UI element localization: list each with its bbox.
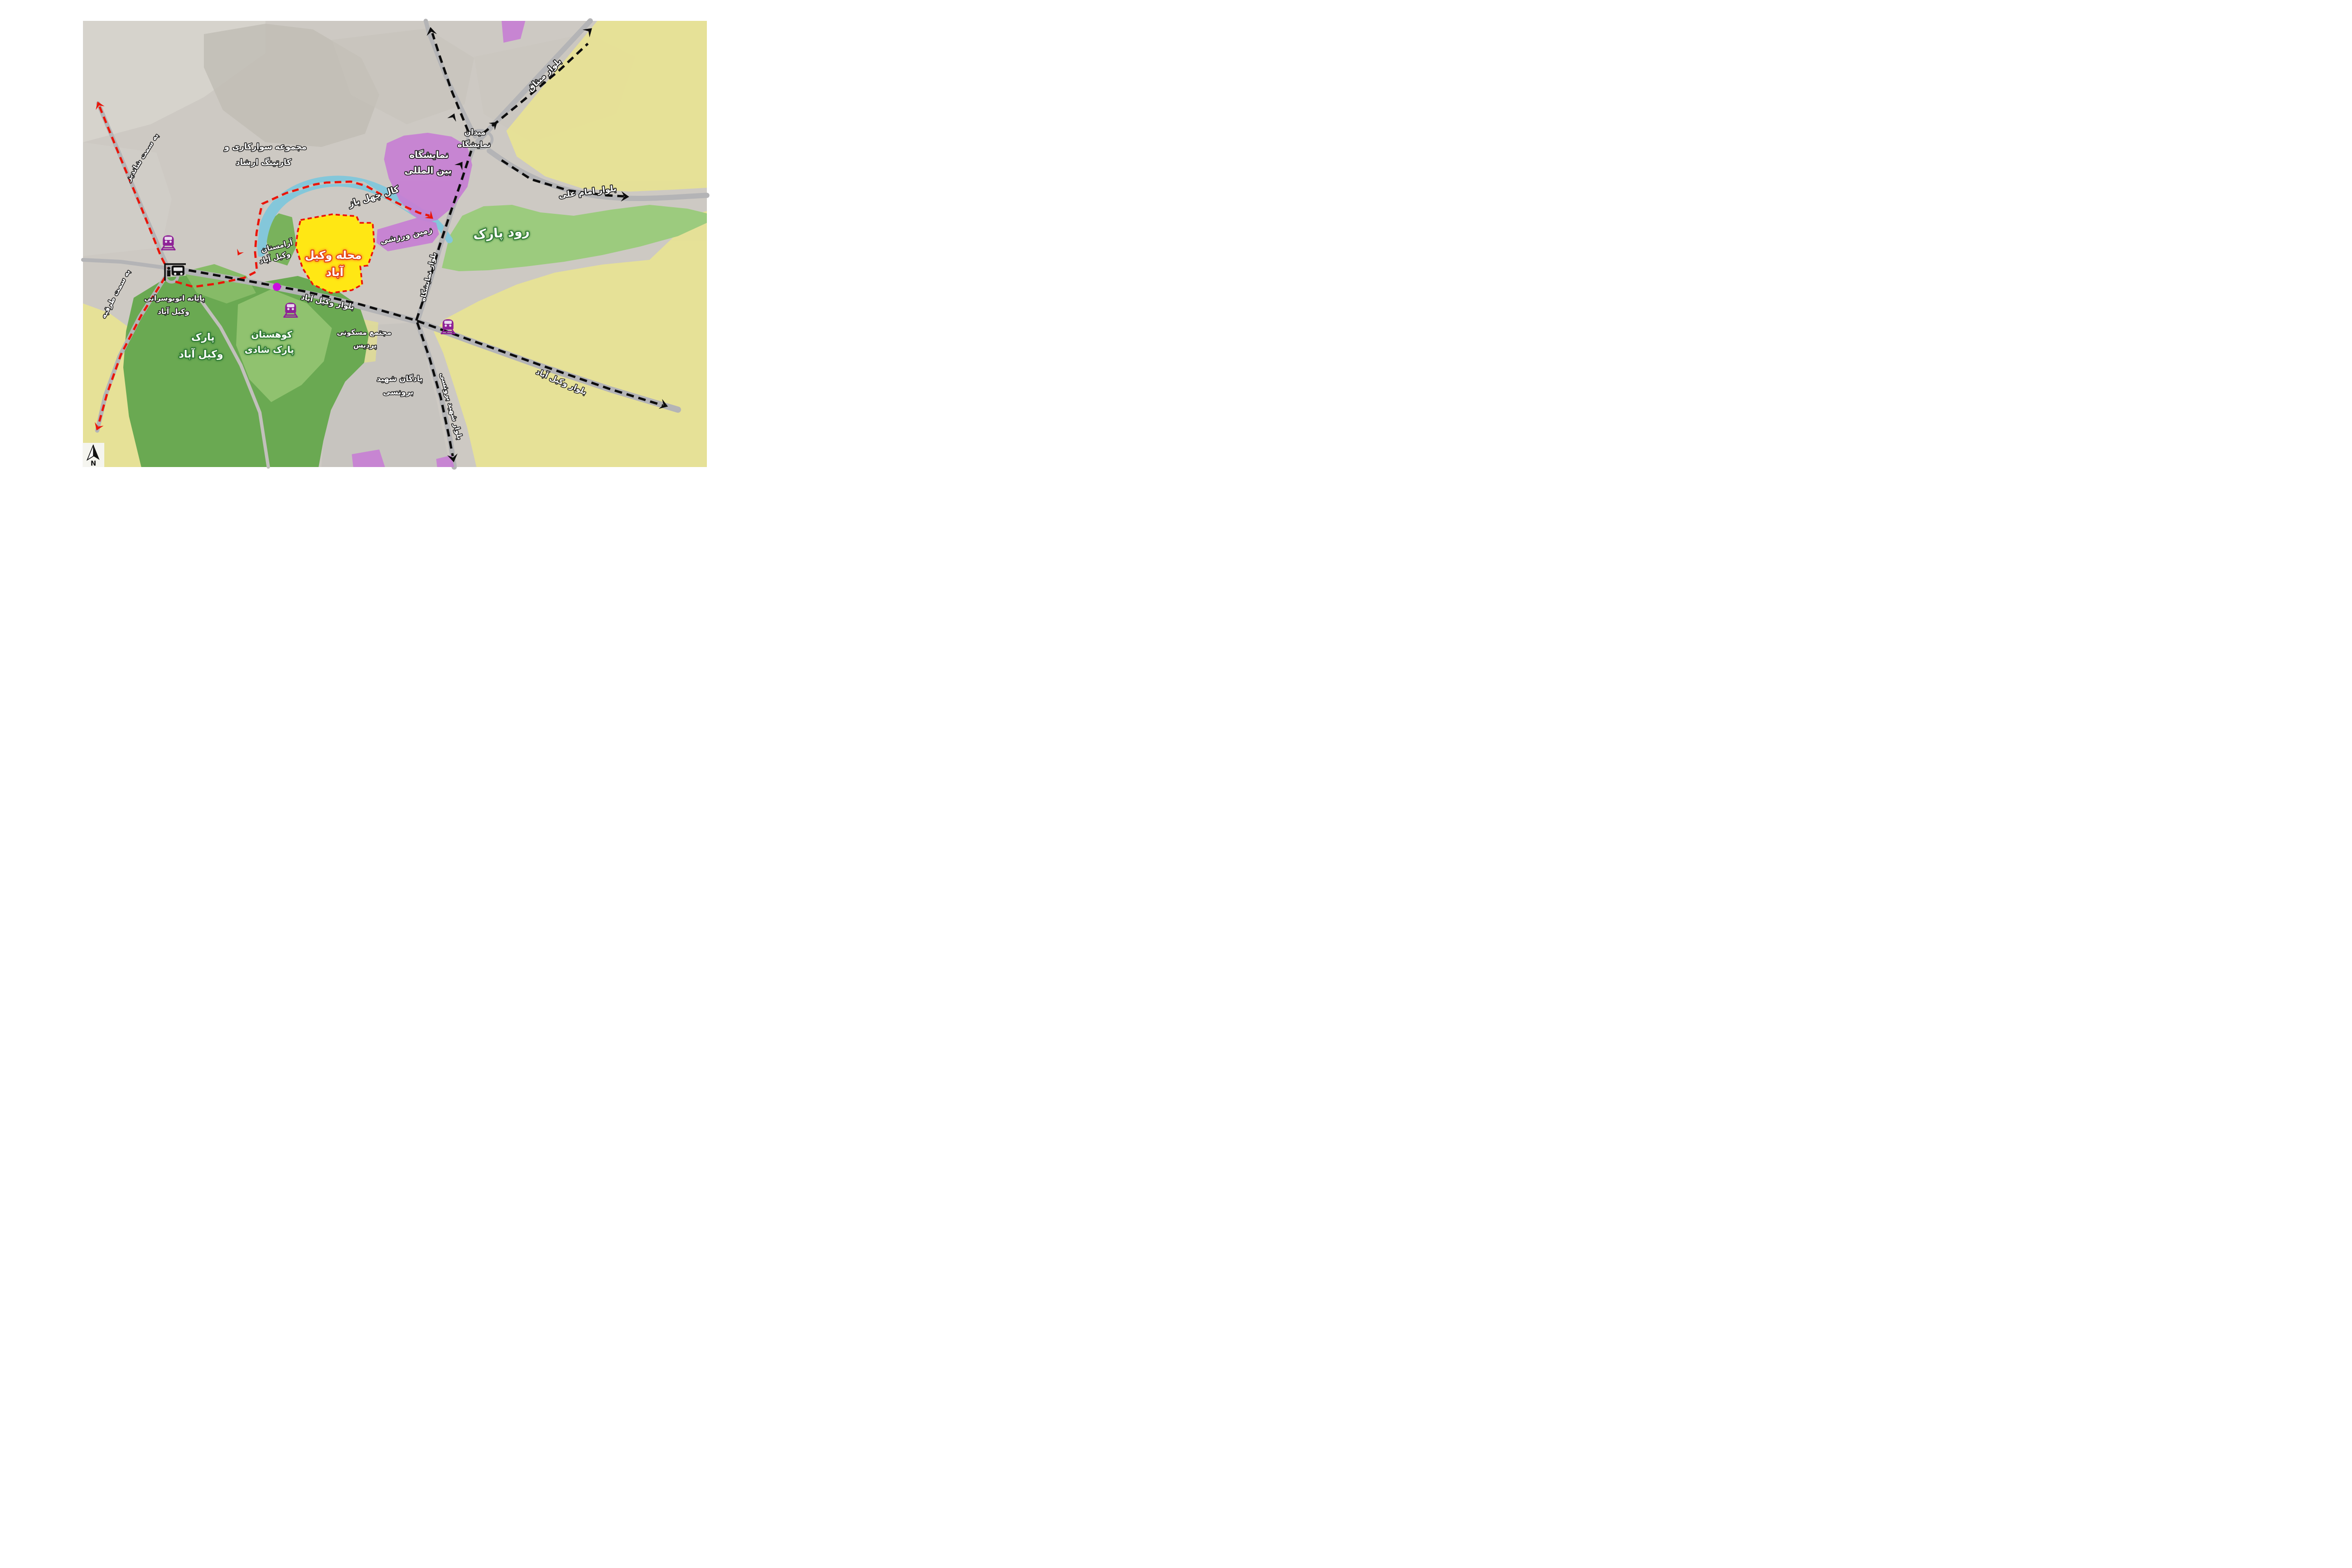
label-exhibition-square-line1: میدان — [465, 128, 486, 137]
label-exhibition-square-line2: نمایشگاه — [458, 140, 491, 149]
label-neighborhood-line2: آباد — [326, 265, 344, 279]
map-page: مجموعه سوارکاری و کارتینگ ارشاد کال چهل … — [0, 0, 732, 486]
north-letter: N — [91, 460, 96, 468]
map-canvas: مجموعه سوارکاری و کارتینگ ارشاد کال چهل … — [0, 0, 732, 486]
metro-train-icon — [161, 235, 175, 250]
label-exhibition-line2: بین المللی — [404, 165, 452, 176]
industrial-texture — [83, 142, 172, 256]
label-bus-terminal-line2: وکیل آباد — [158, 307, 190, 316]
label-shadi-park-line1: کوهستان — [251, 330, 293, 340]
label-barracks-line1: پادگان شهید — [377, 374, 423, 384]
label-equestrian-line2: کارتینگ ارشاد — [236, 157, 291, 167]
label-neighborhood-line1: محله وکیل — [305, 249, 362, 262]
label-pardis-line1: مجتمع مسکونی — [337, 328, 391, 337]
label-barracks-line2: برونسی — [383, 387, 413, 396]
metro-train-icon — [284, 303, 297, 318]
label-pardis-line2: پردیس — [353, 341, 377, 350]
station-dot-icon — [273, 283, 281, 291]
metro-train-icon — [441, 319, 455, 334]
label-vakilabad-park-line2: وکیل آباد — [179, 348, 223, 360]
label-exhibition-line1: نمایشگاه — [410, 149, 449, 160]
label-equestrian-line1: مجموعه سوارکاری و — [224, 142, 307, 152]
label-bus-terminal-line1: پایانه اتوبوسرانی — [144, 294, 205, 303]
north-indicator: N — [82, 443, 104, 468]
label-vakilabad-park-line1: پارک — [191, 331, 214, 343]
label-shadi-park-line2: پارک شادی — [245, 345, 294, 355]
